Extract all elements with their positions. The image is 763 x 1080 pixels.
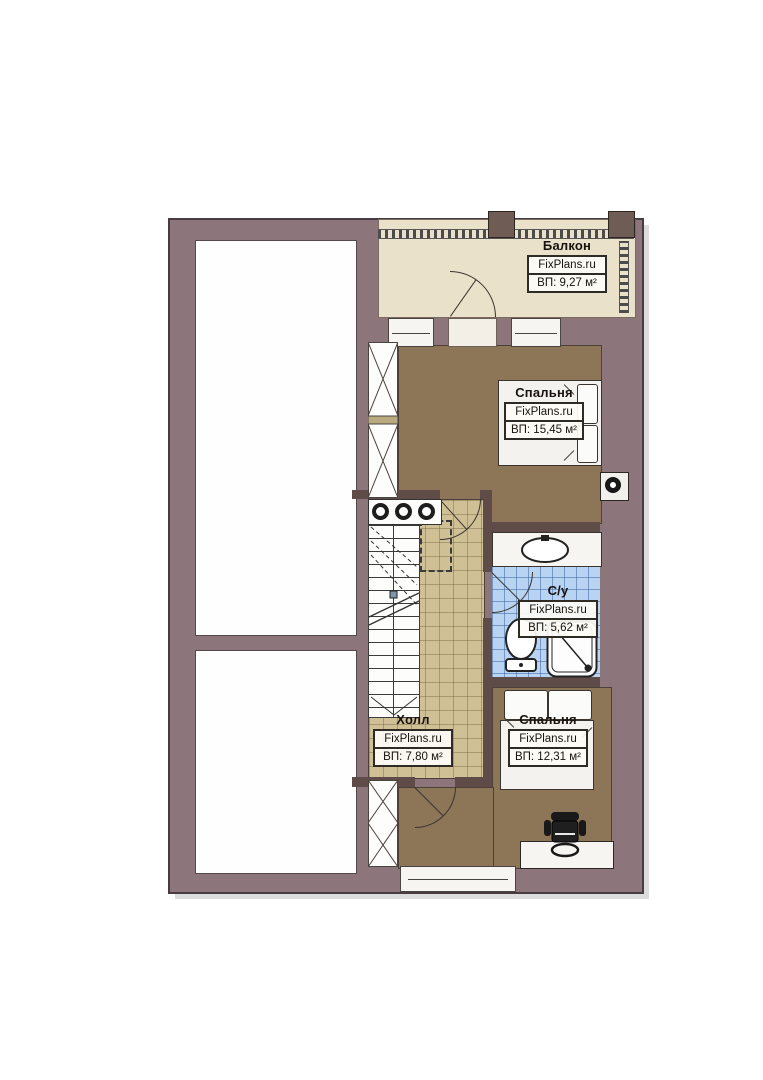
office-chair [544,812,586,858]
closet-bedroom-top [368,342,398,498]
round-fixture-icon [372,503,389,520]
wardrobe-bedroom-bottom [368,780,398,867]
brand-badge: FixPlans.ru [373,729,453,749]
void-room-lower [195,650,357,874]
room-name: Балкон [543,238,591,253]
balcony-post-right [608,211,635,238]
label-hall: Холл FixPlans.ru ВП: 7,80 м² [367,712,459,767]
balcony-post-left [488,211,515,238]
sink-icon [493,533,601,566]
wall-bathroom-bottom [492,677,600,687]
label-bathroom: С/у FixPlans.ru ВП: 5,62 м² [512,583,604,638]
window-bottom [400,866,516,892]
stair-head-round-fixtures [368,499,442,525]
round-fixture-icon [418,503,435,520]
room-name: С/у [548,583,569,598]
label-bedroom-top: Спальня FixPlans.ru ВП: 15,45 м² [498,385,590,440]
wall-hall-bedroom2-right [455,777,492,787]
room-area: ВП: 15,45 м² [504,420,584,440]
staircase [368,524,420,718]
label-bedroom-bottom: Спальня FixPlans.ru ВП: 12,31 м² [502,712,594,767]
room-area: ВП: 7,80 м² [373,747,453,767]
balcony-door-opening [448,318,497,347]
label-balcony: Балкон FixPlans.ru ВП: 9,27 м² [521,238,613,293]
brand-badge: FixPlans.ru [527,255,607,275]
room-area: ВП: 9,27 м² [527,273,607,293]
wall-bathroom-left-lower [483,618,492,787]
room-area: ВП: 12,31 м² [508,747,588,767]
wall-bathroom-left-upper [483,490,492,572]
bathroom-vanity [492,532,602,567]
void-room-upper [195,240,357,636]
wall-bathroom-top [492,522,600,532]
vent-shaft [600,472,629,501]
window-balcony-right [511,318,561,347]
room-name: Спальня [515,385,573,400]
balcony-railing-right [619,241,629,313]
floor-plan: Балкон FixPlans.ru ВП: 9,27 м² Спальня F… [0,0,763,1080]
brand-badge: FixPlans.ru [504,402,584,422]
brand-badge: FixPlans.ru [508,729,588,749]
vent-pipe-icon [605,477,621,493]
wardrobe-icon [368,780,398,867]
room-area: ВП: 5,62 м² [518,618,598,638]
chair-icon [544,812,586,858]
room-name: Холл [396,712,429,727]
upper-flight-outline [420,520,452,572]
round-fixture-icon [395,503,412,520]
stair-direction-icon [369,525,419,717]
room-name: Спальня [519,712,577,727]
brand-badge: FixPlans.ru [518,600,598,620]
wardrobe-icon [368,342,398,498]
